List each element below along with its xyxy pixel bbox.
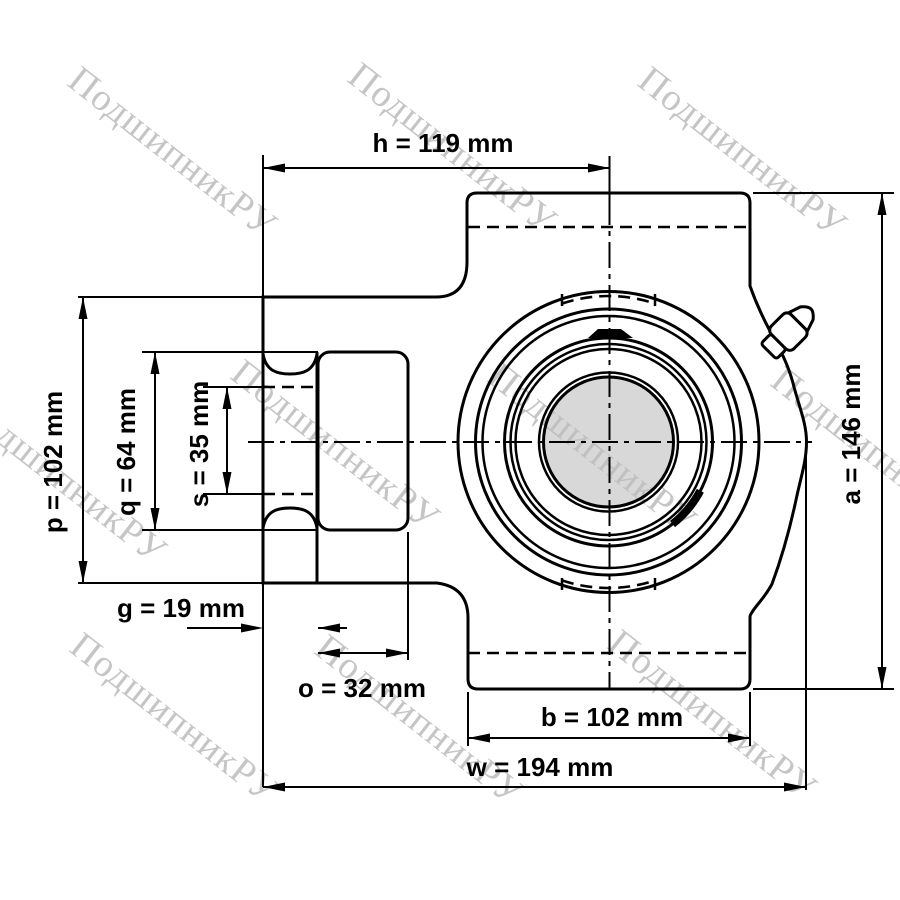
dim-label-g: g = 19 mm bbox=[117, 593, 245, 623]
bearing-unit-drawing: ПодшипникРУ ПодшипникРУ ПодшипникРУ Подш… bbox=[0, 0, 900, 900]
dim-label-q: q = 64 mm bbox=[111, 388, 141, 516]
dim-label-w: w = 194 mm bbox=[466, 752, 614, 782]
dim-label-b: b = 102 mm bbox=[541, 702, 683, 732]
technical-drawing-page: ПодшипникРУ ПодшипникРУ ПодшипникРУ Подш… bbox=[0, 0, 900, 900]
dim-label-p: p = 102 mm bbox=[38, 391, 68, 533]
dim-label-s: s = 35 mm bbox=[184, 381, 214, 507]
dim-label-h: h = 119 mm bbox=[373, 128, 514, 158]
dim-label-o: o = 32 mm bbox=[298, 673, 426, 703]
dim-label-a: a = 146 mm bbox=[836, 364, 866, 505]
